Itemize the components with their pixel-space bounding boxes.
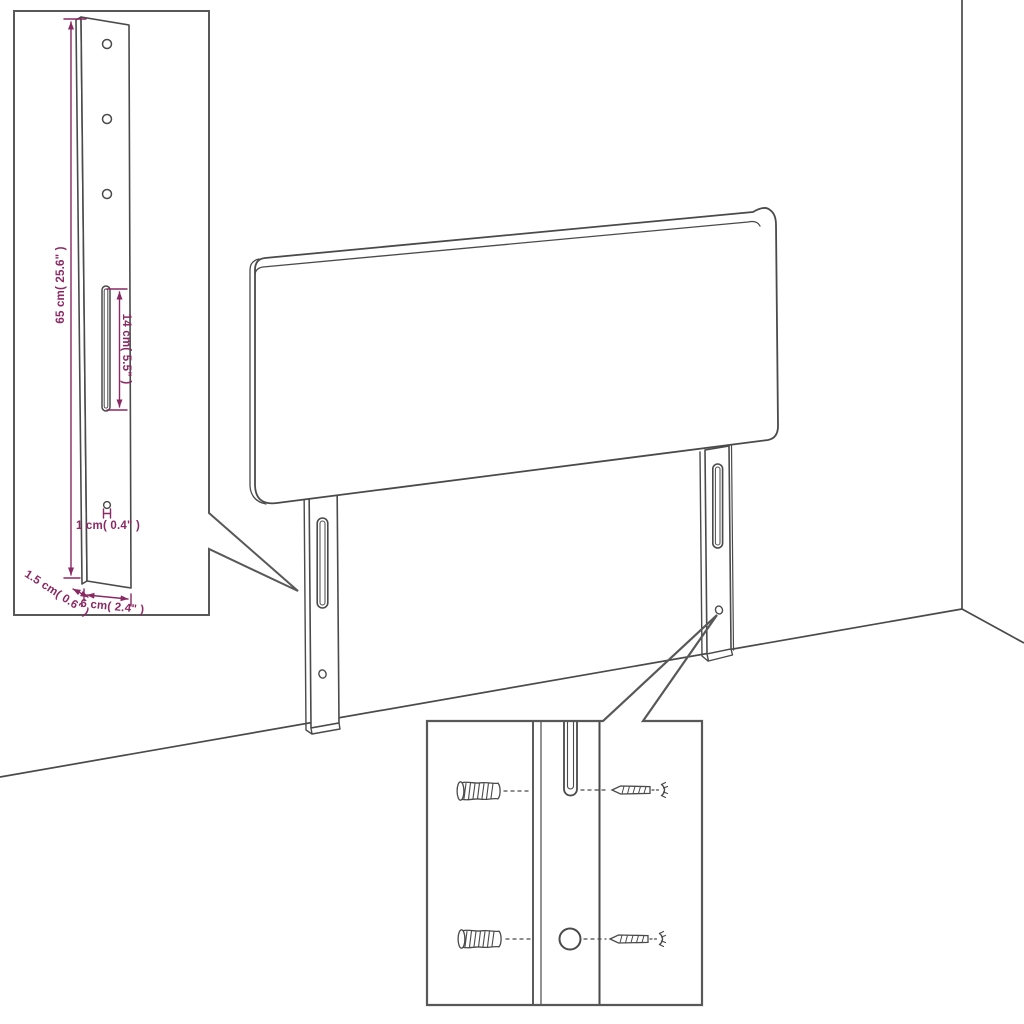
diagram-canvas: 65 cm( 25.6" ) 14 cm( 5.5" ) 1 cm( 0.4" … — [0, 0, 1024, 1024]
bracket-hole-1 — [103, 40, 112, 49]
bracket-drawing — [76, 17, 131, 588]
right-leg-slot — [713, 464, 723, 548]
dimension-1cm-label: 1 cm( 0.4" ) — [76, 520, 140, 532]
headboard-left-leg — [304, 474, 340, 734]
headboard-right-leg — [700, 446, 734, 661]
detail-callout-bottom — [427, 615, 717, 1005]
floor-line-right — [962, 609, 1024, 643]
right-leg-back-edge — [732, 446, 734, 650]
dimension-14cm-label: 14 cm( 5.5" ) — [120, 314, 132, 385]
bracket-slot — [102, 286, 110, 411]
dimension-65cm-label: 65 cm( 25.6" ) — [55, 246, 67, 323]
bracket-hole-2 — [103, 115, 112, 124]
bracket-hole-3 — [103, 190, 112, 199]
left-leg-slot — [317, 518, 328, 608]
headboard-panel — [250, 208, 778, 504]
headboard-dimension-diagram: 65 cm( 25.6" ) 14 cm( 5.5" ) 1 cm( 0.4" … — [0, 0, 1024, 1024]
bracket-hole-bottom — [104, 502, 111, 509]
